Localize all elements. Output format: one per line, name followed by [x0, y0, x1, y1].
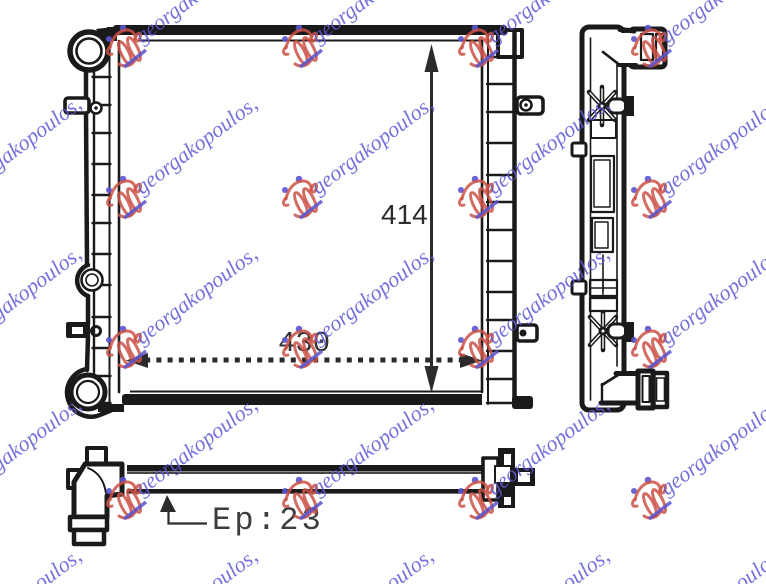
svg-text:414: 414: [381, 199, 428, 230]
